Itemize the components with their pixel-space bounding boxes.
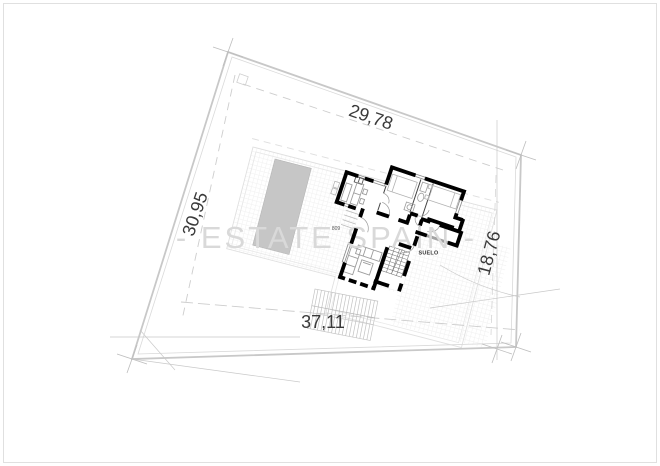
svg-text:37,11: 37,11 [301,312,345,332]
svg-text:809: 809 [332,226,341,232]
svg-text:18,76: 18,76 [474,229,505,278]
svg-text:SUELO: SUELO [418,251,438,257]
svg-text:29,78: 29,78 [346,100,395,134]
